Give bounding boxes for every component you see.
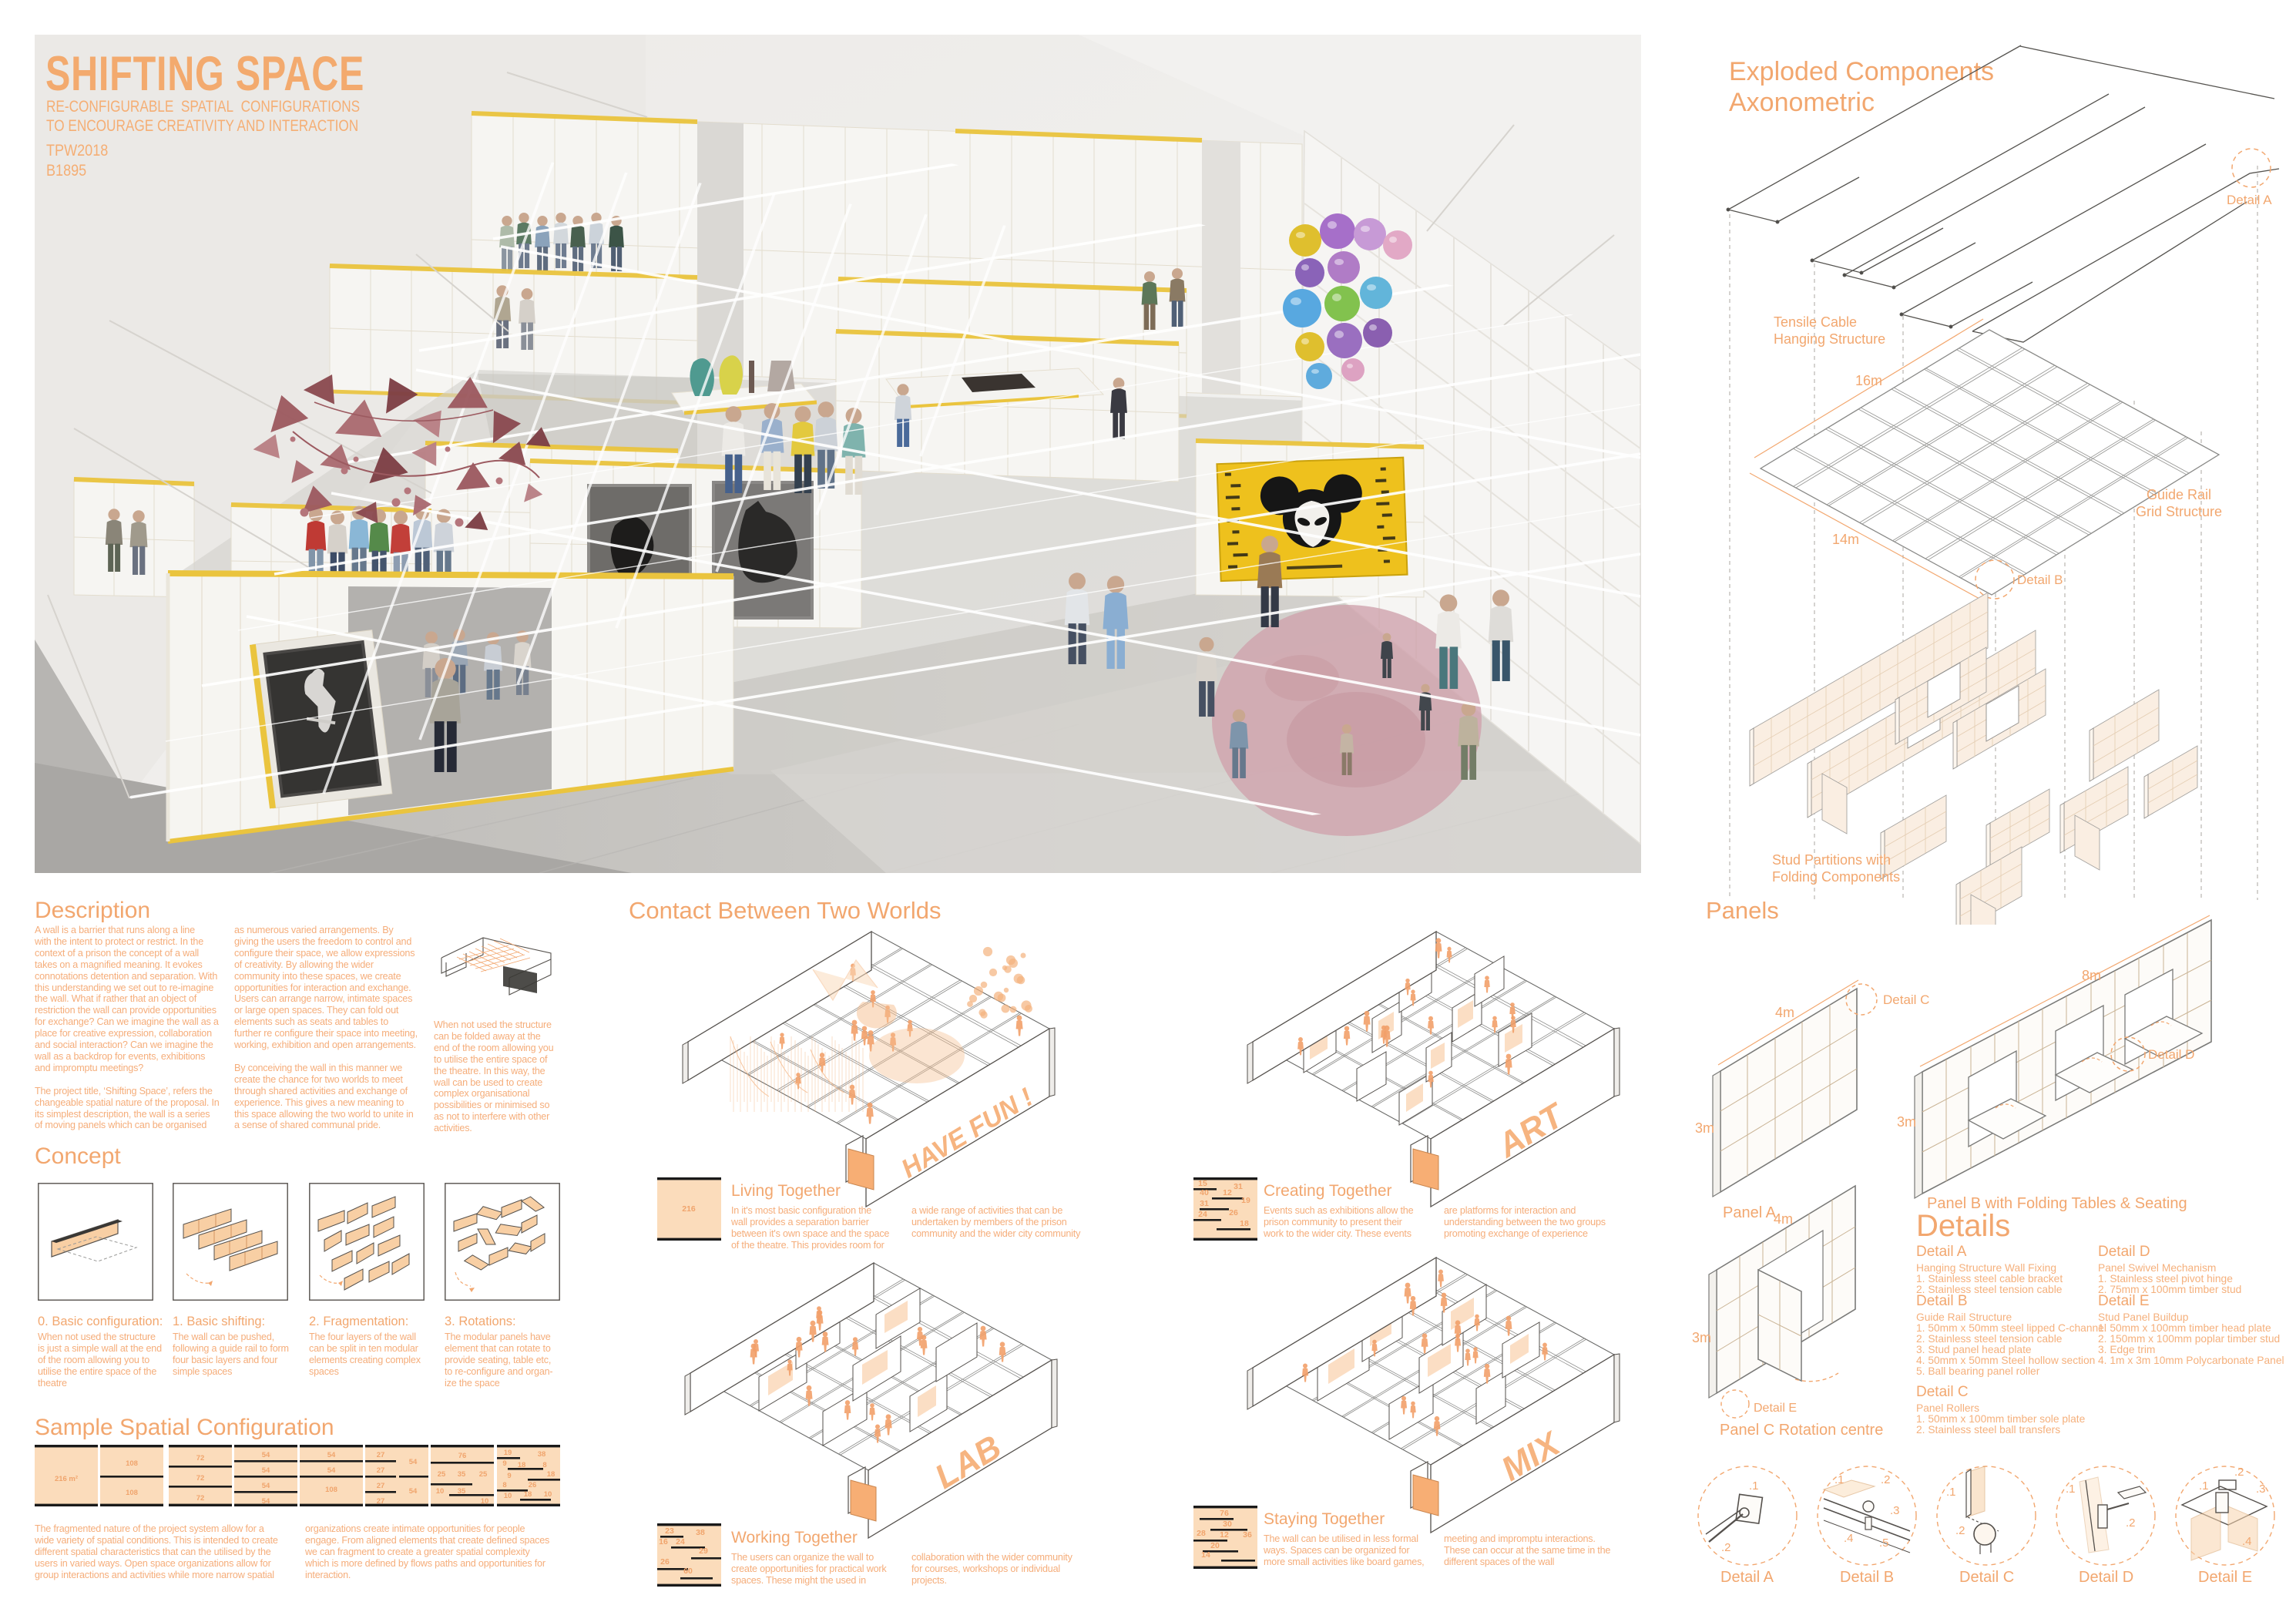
svg-text:18: 18 [518, 1461, 526, 1469]
svg-text:Exploded Components: Exploded Components [1729, 57, 1994, 86]
svg-text:54: 54 [409, 1487, 418, 1496]
svg-text:8: 8 [502, 1481, 506, 1489]
svg-text:3m: 3m [1695, 1120, 1714, 1136]
svg-text:54: 54 [327, 1466, 336, 1475]
svg-text:1. Stainless steel pivot hinge: 1. Stainless steel pivot hinge [2098, 1273, 2233, 1285]
svg-text:.5: .5 [1879, 1536, 1889, 1550]
svg-text:Details: Details [1916, 1209, 2010, 1243]
svg-text:4m: 4m [1774, 1211, 1793, 1227]
svg-text:Detail B: Detail B [2017, 573, 2063, 587]
svg-text:9: 9 [502, 1459, 506, 1468]
svg-text:216 m²: 216 m² [55, 1475, 78, 1483]
svg-text:25: 25 [479, 1470, 488, 1479]
svg-text:.3: .3 [2256, 1483, 2266, 1496]
svg-text:.1: .1 [2066, 1483, 2076, 1496]
svg-text:1. 50mm x 50mm steel lipped C-: 1. 50mm x 50mm steel lipped C-channel [1916, 1322, 2106, 1334]
svg-text:.2: .2 [2234, 1466, 2244, 1479]
svg-text:8: 8 [542, 1461, 546, 1469]
svg-text:.2: .2 [1955, 1524, 1965, 1537]
svg-text:38: 38 [538, 1450, 546, 1459]
svg-text:Detail D: Detail D [2098, 1244, 2150, 1260]
svg-text:.1: .1 [2199, 1479, 2209, 1493]
svg-text:24: 24 [1198, 1210, 1207, 1219]
svg-text:Axonometric: Axonometric [1729, 88, 1875, 117]
svg-text:27: 27 [377, 1482, 385, 1490]
svg-text:4. 1m x 3m 10mm Polycarbonate: 4. 1m x 3m 10mm Polycarbonate Panel [2098, 1355, 2284, 1366]
svg-text:Hanging Structure: Hanging Structure [1774, 331, 1885, 347]
svg-text:.1: .1 [1749, 1479, 1759, 1493]
svg-text:18: 18 [1240, 1219, 1249, 1228]
svg-text:10: 10 [436, 1487, 445, 1496]
svg-text:76: 76 [1220, 1509, 1229, 1518]
svg-text:3. Edge trim: 3. Edge trim [2098, 1344, 2155, 1355]
svg-text:72: 72 [196, 1454, 205, 1462]
svg-text:20: 20 [1210, 1541, 1220, 1550]
svg-text:Detail D: Detail D [2079, 1569, 2133, 1586]
svg-text:1. 50mm x 100mm timber sole pl: 1. 50mm x 100mm timber sole plate [1916, 1413, 2086, 1425]
svg-text:14: 14 [1201, 1550, 1210, 1560]
svg-text:108: 108 [325, 1486, 337, 1494]
svg-text:Detail A: Detail A [1720, 1569, 1774, 1586]
svg-text:24: 24 [676, 1537, 685, 1546]
svg-text:72: 72 [196, 1494, 205, 1503]
svg-text:2. 150mm x 100mm poplar timber: 2. 150mm x 100mm poplar timber stud [2098, 1333, 2280, 1345]
svg-text:Panel A: Panel A [1723, 1204, 1777, 1221]
svg-text:38: 38 [696, 1528, 705, 1537]
svg-text:.4: .4 [1844, 1532, 1854, 1545]
svg-text:Panel C Rotation centre: Panel C Rotation centre [1720, 1422, 1883, 1439]
svg-text:Detail E: Detail E [2198, 1569, 2252, 1586]
svg-text:27: 27 [377, 1451, 385, 1459]
svg-text:25: 25 [438, 1470, 446, 1479]
svg-text:19: 19 [504, 1449, 512, 1457]
svg-text:Detail E: Detail E [2098, 1293, 2150, 1309]
svg-text:16: 16 [659, 1537, 668, 1546]
svg-text:Detail B: Detail B [1840, 1569, 1894, 1586]
svg-text:Detail C: Detail C [1959, 1569, 2014, 1586]
svg-text:18: 18 [547, 1470, 556, 1479]
svg-text:.3: .3 [1890, 1504, 1900, 1517]
svg-text:27: 27 [377, 1466, 385, 1475]
svg-text:31: 31 [1234, 1182, 1243, 1191]
svg-text:Panel Swivel Mechanism: Panel Swivel Mechanism [2098, 1262, 2216, 1274]
svg-text:Panels: Panels [1706, 897, 1779, 924]
svg-text:9: 9 [507, 1472, 511, 1480]
svg-text:40: 40 [1200, 1188, 1209, 1197]
svg-text:Stud Panel Buildup: Stud Panel Buildup [2098, 1311, 2189, 1323]
svg-text:Detail B: Detail B [1916, 1293, 1968, 1309]
svg-text:.2: .2 [2126, 1516, 2136, 1530]
svg-text:10: 10 [481, 1497, 489, 1506]
svg-text:36: 36 [1243, 1530, 1252, 1540]
svg-text:.2: .2 [1721, 1541, 1731, 1554]
svg-text:54: 54 [262, 1497, 270, 1506]
svg-text:.1: .1 [1946, 1486, 1956, 1499]
svg-text:.2: .2 [1881, 1473, 1891, 1486]
svg-text:Contact Between Two Worlds: Contact Between Two Worlds [629, 897, 942, 924]
svg-text:Detail C: Detail C [1883, 992, 1929, 1007]
svg-text:4m: 4m [1775, 1005, 1794, 1020]
svg-text:.4: .4 [2242, 1535, 2252, 1548]
svg-text:30: 30 [1223, 1520, 1232, 1529]
svg-text:3m: 3m [1897, 1114, 1916, 1130]
svg-text:5. Ball bearing panel roller: 5. Ball bearing panel roller [1916, 1365, 2040, 1377]
svg-text:29: 29 [699, 1546, 708, 1556]
svg-text:Tensile Cable: Tensile Cable [1774, 314, 1857, 330]
svg-text:.1: .1 [1834, 1473, 1845, 1486]
svg-text:3. Stud panel head plate: 3. Stud panel head plate [1916, 1344, 2032, 1355]
svg-text:16m: 16m [1855, 373, 1882, 388]
svg-text:12: 12 [1220, 1530, 1229, 1540]
svg-text:Detail A: Detail A [1916, 1244, 1967, 1260]
svg-text:54: 54 [262, 1451, 270, 1459]
svg-text:72: 72 [196, 1474, 205, 1483]
svg-text:Stud Partitions with: Stud Partitions with [1772, 852, 1891, 868]
svg-text:19: 19 [1241, 1196, 1250, 1205]
svg-text:54: 54 [262, 1482, 270, 1490]
svg-text:31: 31 [1200, 1199, 1209, 1208]
svg-text:35: 35 [458, 1487, 466, 1496]
svg-text:2. Stainless steel ball transf: 2. Stainless steel ball transfers [1916, 1424, 2060, 1436]
svg-text:23: 23 [665, 1526, 674, 1536]
svg-text:26: 26 [660, 1557, 670, 1567]
svg-text:28: 28 [1197, 1529, 1206, 1538]
svg-text:15: 15 [1198, 1179, 1207, 1188]
svg-text:4. 50mm x 50mm Steel hollow se: 4. 50mm x 50mm Steel hollow section [1916, 1355, 2095, 1366]
svg-text:216: 216 [682, 1204, 696, 1214]
svg-text:Folding Components: Folding Components [1772, 869, 1900, 885]
svg-text:54: 54 [327, 1451, 336, 1459]
svg-text:108: 108 [126, 1489, 138, 1497]
svg-text:Guide Rail: Guide Rail [2147, 487, 2211, 502]
svg-text:10: 10 [544, 1490, 552, 1499]
svg-text:Detail E: Detail E [1754, 1402, 1797, 1415]
svg-text:54: 54 [262, 1466, 270, 1475]
svg-text:18: 18 [524, 1490, 532, 1499]
svg-text:Detail D: Detail D [2148, 1047, 2194, 1062]
svg-text:108: 108 [126, 1459, 138, 1468]
svg-text:14m: 14m [1832, 532, 1859, 547]
svg-text:Guide Rail Structure: Guide Rail Structure [1916, 1311, 2012, 1323]
svg-text:26: 26 [529, 1481, 537, 1489]
svg-text:35: 35 [458, 1470, 466, 1479]
svg-text:Detail C: Detail C [1916, 1384, 1969, 1400]
svg-text:10: 10 [504, 1492, 512, 1500]
svg-text:1. 50mm x 100mm timber head pl: 1. 50mm x 100mm timber head plate [2098, 1322, 2271, 1334]
svg-text:26: 26 [1229, 1208, 1238, 1217]
svg-text:54: 54 [409, 1458, 418, 1466]
svg-text:1. Stainless steel cable brack: 1. Stainless steel cable bracket [1916, 1273, 2063, 1285]
svg-text:60: 60 [683, 1567, 693, 1576]
svg-text:27: 27 [377, 1497, 385, 1506]
svg-text:2. Stainless steel tension cab: 2. Stainless steel tension cable [1916, 1333, 2063, 1345]
svg-text:Panel Rollers: Panel Rollers [1916, 1402, 1979, 1414]
svg-text:12: 12 [1223, 1188, 1232, 1197]
svg-text:3m: 3m [1692, 1330, 1711, 1345]
svg-text:Grid Structure: Grid Structure [2136, 504, 2222, 519]
svg-text:Detail A: Detail A [2227, 193, 2272, 207]
svg-text:Hanging Structure Wall Fixing: Hanging Structure Wall Fixing [1916, 1262, 2056, 1274]
svg-text:76: 76 [458, 1452, 467, 1460]
